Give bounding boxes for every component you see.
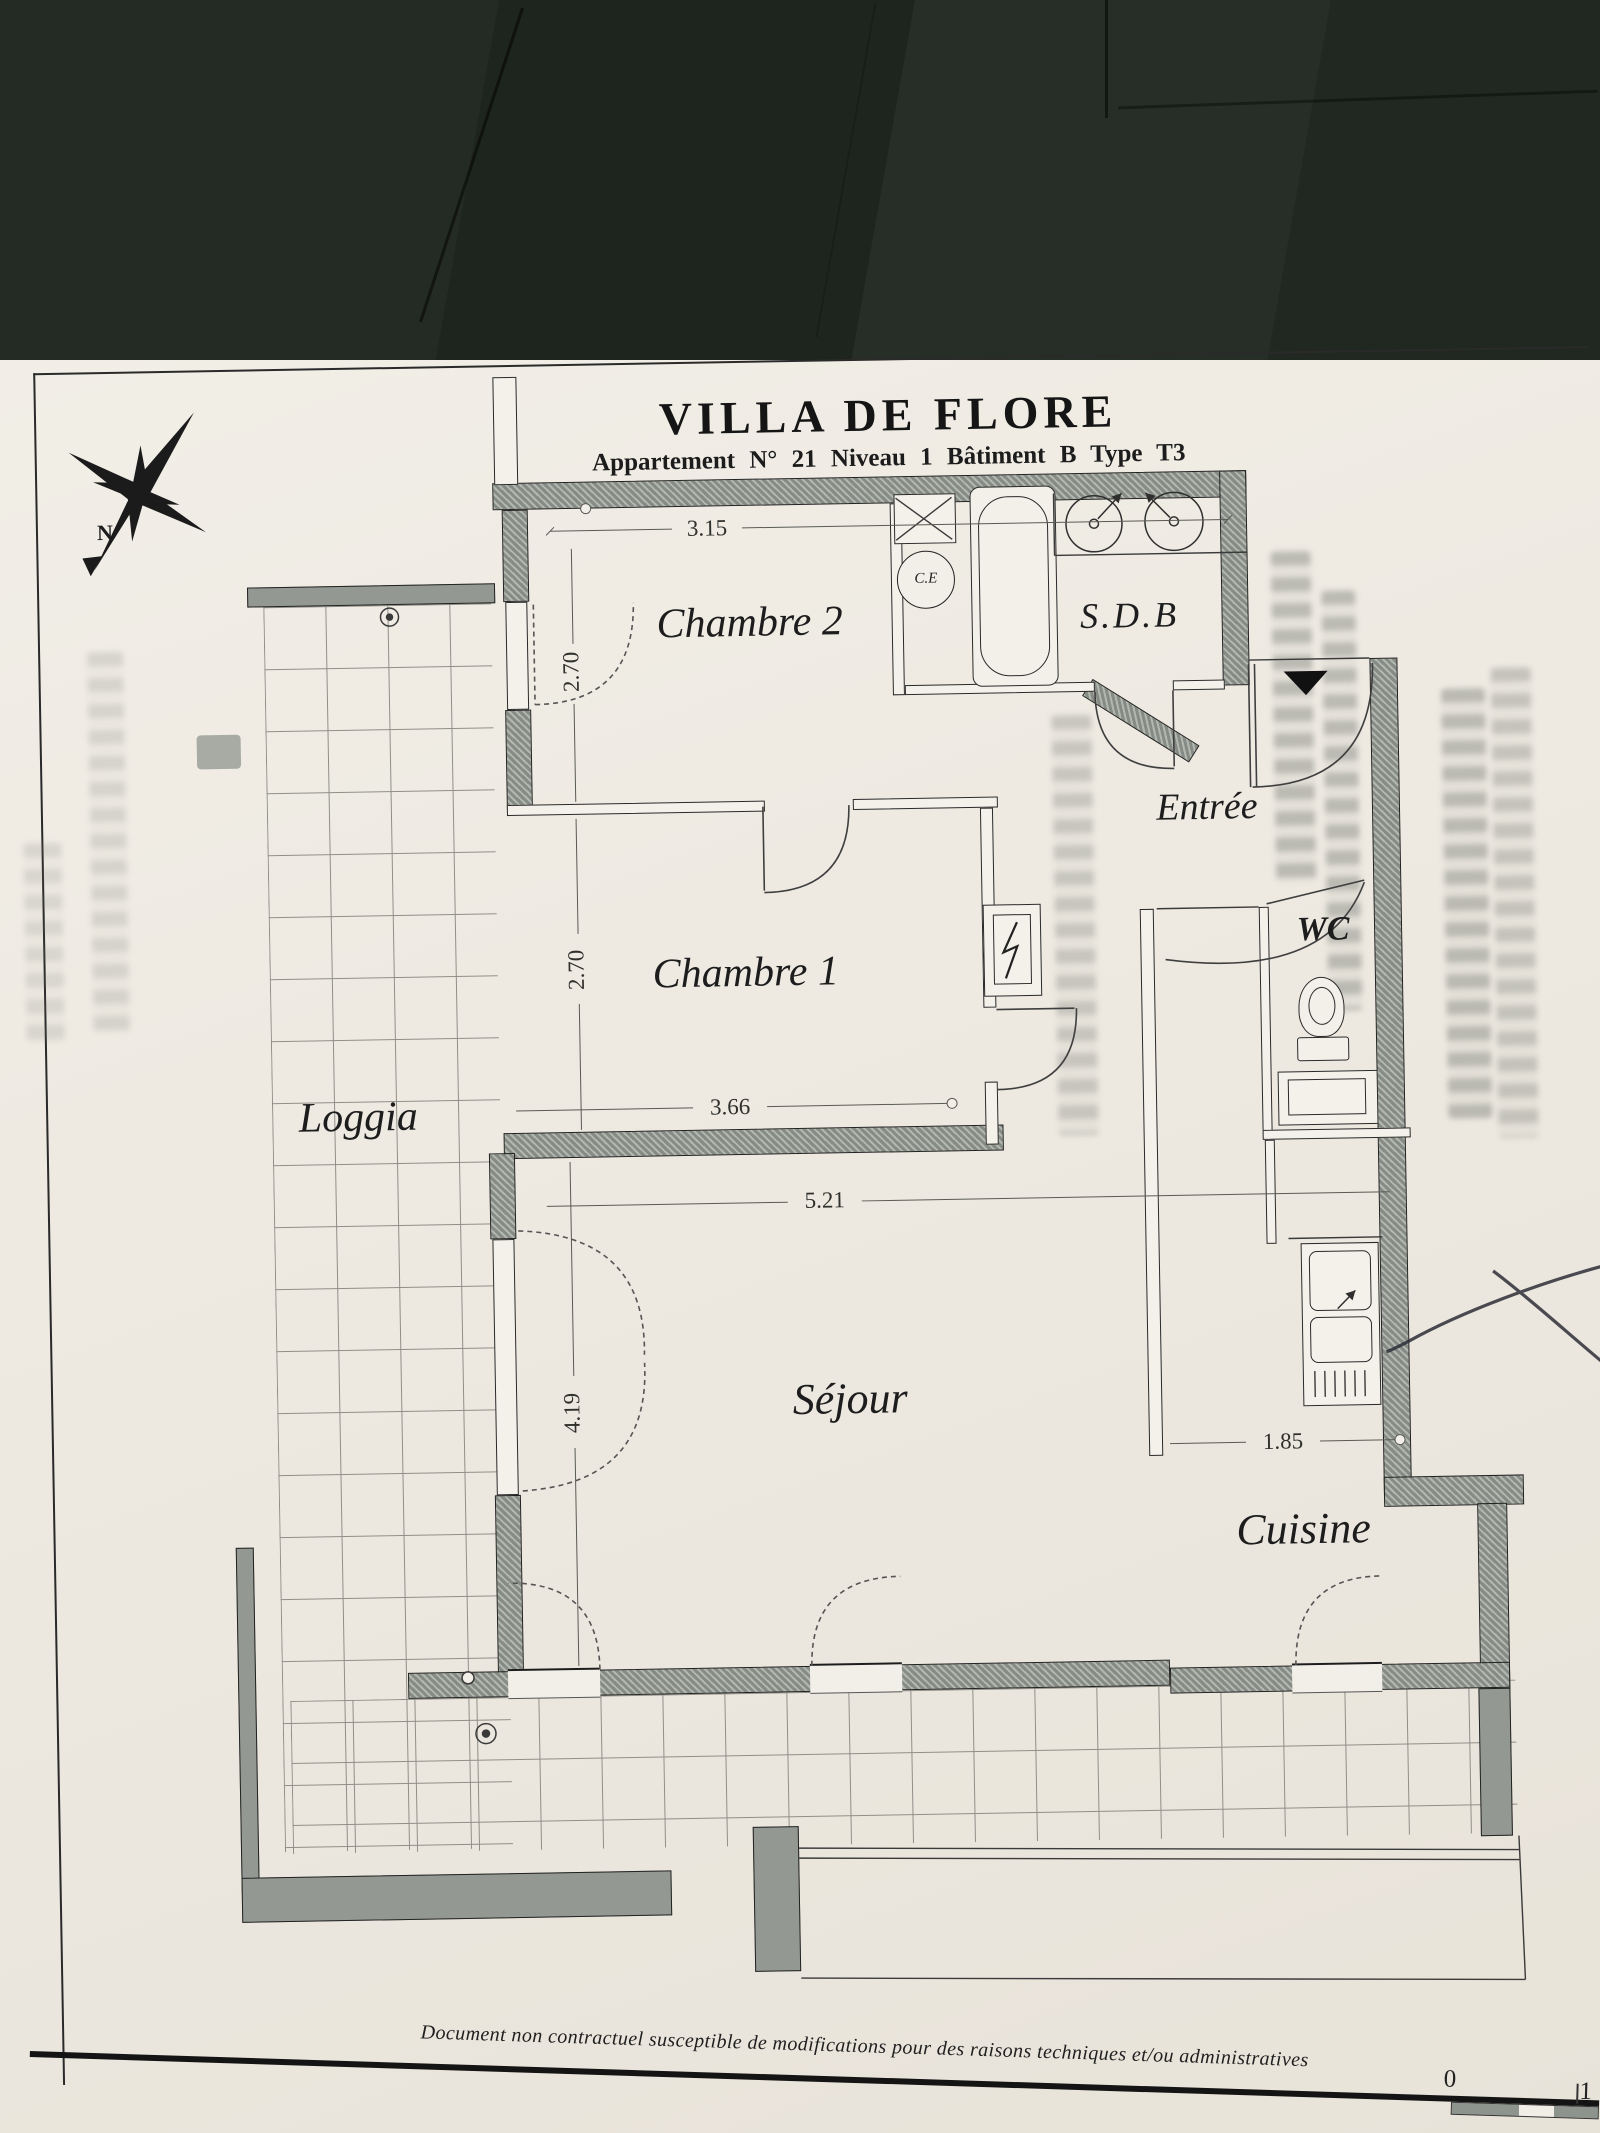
footer-group: Document non contractuel susceptible de …: [0, 0, 1600, 2133]
photo-of-floorplan: VILLA DE FLORE Appartement N° 21 Niveau …: [0, 0, 1600, 2133]
scale-bar-start: 0: [1443, 2065, 1456, 2093]
scale-bar-end: 1: [1579, 2078, 1592, 2106]
